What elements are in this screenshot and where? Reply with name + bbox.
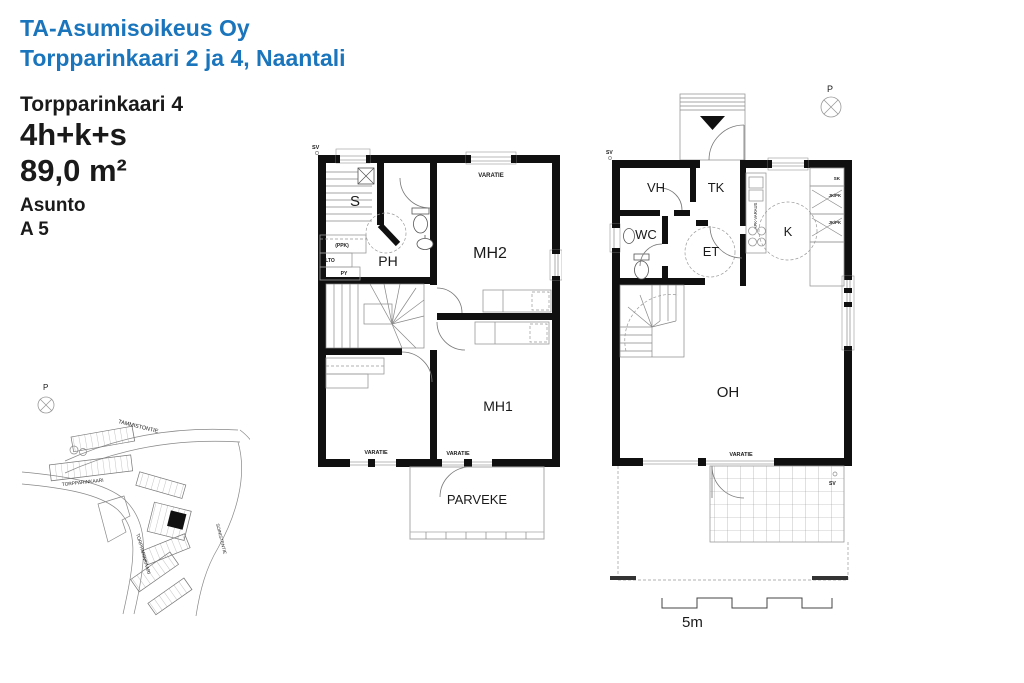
room-label-mh1: MH1 bbox=[483, 398, 513, 414]
room-label-vh: VH bbox=[647, 180, 665, 195]
wc-sink-icon bbox=[624, 229, 635, 244]
street-name: Torpparinkaari 4 bbox=[20, 92, 183, 117]
py-label: PY bbox=[341, 271, 348, 277]
kitchen-counter: APK-VARAUS bbox=[746, 173, 766, 253]
entrance-arrow-icon bbox=[700, 116, 725, 130]
jkpk-label-1: JK/PK bbox=[829, 193, 841, 198]
bed-mh2 bbox=[483, 290, 551, 312]
lto-label: LTO bbox=[325, 258, 335, 264]
floorplan-sheet: TA-Asumisoikeus Oy Torpparinkaari 2 ja 4… bbox=[0, 0, 1024, 683]
apartment-area: 89,0 m² bbox=[20, 153, 183, 189]
ppk-label: (PPK) bbox=[335, 243, 349, 249]
compass-label: P bbox=[827, 84, 833, 94]
apartment-type: 4h+k+s bbox=[20, 117, 183, 153]
room-label-mh2: MH2 bbox=[473, 245, 507, 262]
varatie-label-top: VARATIE bbox=[478, 173, 503, 179]
terrace: SV bbox=[610, 466, 848, 580]
apk-label: APK-VARAUS bbox=[753, 202, 758, 229]
toilet-icon bbox=[412, 208, 429, 233]
compass-icon: P bbox=[821, 84, 841, 117]
room-label-ph: PH bbox=[378, 253, 397, 269]
scale-label: 5m bbox=[682, 614, 703, 631]
sv-label-top: SV bbox=[606, 150, 613, 156]
room-label-tk: TK bbox=[708, 180, 725, 195]
bed-mh1 bbox=[475, 322, 549, 344]
scale-bar: 5m bbox=[662, 598, 832, 631]
street-label-torpparinkaari-1: TORPPARINKAARI bbox=[62, 478, 104, 488]
housing-blocks bbox=[49, 426, 192, 615]
utility-closets: (PPK) LTO PY bbox=[320, 235, 366, 280]
stairs-upper bbox=[326, 284, 424, 348]
site-compass-icon: P bbox=[38, 383, 54, 413]
site-map: P bbox=[20, 376, 250, 621]
apartment-code: A 5 bbox=[20, 218, 183, 242]
ground-floor-plan: P SV bbox=[598, 76, 866, 642]
room-label-oh: OH bbox=[717, 384, 740, 401]
site-compass-label: P bbox=[43, 383, 48, 392]
roads bbox=[22, 429, 250, 616]
sv-label: SV bbox=[312, 145, 320, 151]
varatie-label-br: VARATIE bbox=[446, 451, 470, 457]
room-label-k: K bbox=[784, 224, 793, 239]
company-title: TA-Asumisoikeus Oy bbox=[20, 14, 346, 44]
upper-floor-plan: SV VARATIE bbox=[306, 138, 562, 550]
entrance-porch bbox=[680, 94, 745, 160]
varatie-label-ground: VARATIE bbox=[729, 452, 753, 458]
varatie-label-bl: VARATIE bbox=[364, 450, 388, 456]
bedroom3-closet bbox=[326, 358, 384, 388]
windows: VARATIE bbox=[336, 149, 562, 467]
room-label-wc: WC bbox=[635, 227, 657, 242]
stairs-ground bbox=[620, 285, 684, 357]
sv-label-terrace: SV bbox=[829, 481, 836, 487]
balcony-label: PARVEKE bbox=[447, 492, 508, 507]
kitchen-sink-icon bbox=[749, 177, 763, 188]
header: TA-Asumisoikeus Oy Torpparinkaari 2 ja 4… bbox=[20, 14, 346, 74]
room-label-et: ET bbox=[703, 244, 720, 259]
jkpk-label-2: JK/PK bbox=[829, 220, 841, 225]
sk-label: SK bbox=[834, 176, 841, 181]
room-label-sauna: S bbox=[350, 193, 360, 210]
apartment-info: Torpparinkaari 4 4h+k+s 89,0 m² Asunto A… bbox=[20, 92, 183, 242]
kitchen-cabinets: SK JK/PK JK/PK bbox=[810, 168, 844, 286]
apartment-label: Asunto bbox=[20, 194, 183, 218]
balcony: PARVEKE bbox=[410, 467, 544, 539]
address-subtitle: Torpparinkaari 2 ja 4, Naantali bbox=[20, 44, 346, 74]
